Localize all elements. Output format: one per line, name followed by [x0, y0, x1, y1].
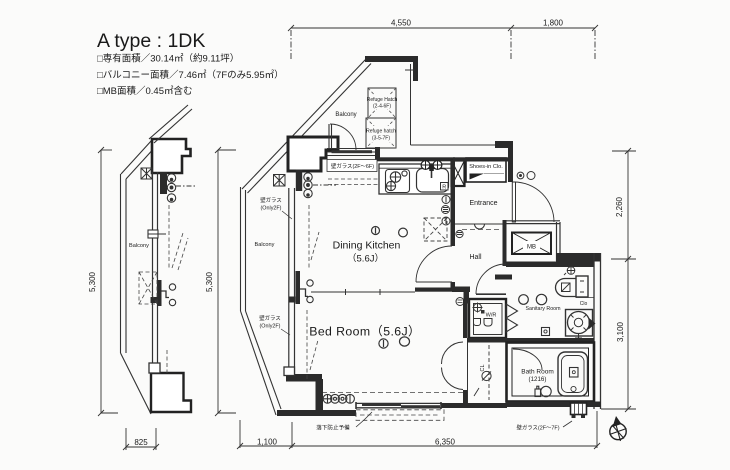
svg-text:壁ガラス: 壁ガラス — [260, 196, 281, 204]
svg-text:1,800: 1,800 — [543, 19, 564, 28]
svg-text:Refuge hatch: Refuge hatch — [366, 129, 396, 135]
svg-text:壁ガラス(2F～7F): 壁ガラス(2F～7F) — [516, 424, 559, 432]
svg-text:□バルコニー面積／7.46㎡（7Fのみ5.95㎡）: □バルコニー面積／7.46㎡（7Fのみ5.95㎡） — [97, 69, 284, 81]
svg-text:6,350: 6,350 — [435, 438, 456, 447]
svg-text:5,300: 5,300 — [88, 271, 97, 292]
svg-text:壁ガラス: 壁ガラス — [259, 314, 280, 322]
svg-text:A type : 1DK: A type : 1DK — [97, 30, 205, 52]
svg-text:W/R: W/R — [486, 313, 497, 319]
svg-text:（5.6J）: （5.6J） — [347, 253, 384, 265]
svg-text:(Only2F): (Only2F) — [260, 324, 281, 330]
svg-text:(1216): (1216) — [529, 376, 547, 383]
svg-text:□MB面積／0.45㎡含む: □MB面積／0.45㎡含む — [97, 85, 192, 97]
svg-text:落下防止予備: 落下防止予備 — [316, 424, 350, 432]
svg-text:Balcony: Balcony — [335, 112, 356, 118]
svg-text:Hall: Hall — [469, 254, 482, 261]
svg-text:Refuge Hatch: Refuge Hatch — [367, 97, 398, 103]
svg-text:Balcony: Balcony — [129, 243, 149, 249]
svg-text:Bath Room: Bath Room — [521, 369, 554, 376]
svg-text:MB: MB — [527, 245, 536, 251]
svg-text:825: 825 — [134, 438, 148, 447]
svg-text:Clo: Clo — [580, 301, 588, 307]
svg-text:(2-4-6F): (2-4-6F) — [373, 104, 391, 110]
svg-text:5,300: 5,300 — [205, 271, 214, 292]
svg-text:Sanitary Room: Sanitary Room — [525, 306, 561, 312]
svg-text:4,550: 4,550 — [391, 19, 412, 28]
svg-text:Dining Kitchen: Dining Kitchen — [333, 240, 401, 252]
svg-text:(3-5-7F): (3-5-7F) — [372, 136, 390, 142]
svg-text:壁ガラス(2F～6F): 壁ガラス(2F～6F) — [331, 162, 374, 170]
svg-text:2,260: 2,260 — [615, 196, 624, 217]
svg-text:3,100: 3,100 — [616, 321, 625, 342]
svg-text:1,100: 1,100 — [257, 438, 278, 447]
svg-text:□専有面積／30.14㎡（約9.11坪）: □専有面積／30.14㎡（約9.11坪） — [97, 53, 239, 65]
svg-text:Balcony: Balcony — [255, 242, 275, 248]
svg-text:(Only2F): (Only2F) — [261, 206, 282, 212]
svg-text:CL: CL — [480, 364, 486, 371]
svg-text:Entrance: Entrance — [469, 200, 497, 207]
svg-text:Shoes-in Clo.: Shoes-in Clo. — [469, 164, 503, 170]
svg-text:R: R — [442, 185, 446, 191]
